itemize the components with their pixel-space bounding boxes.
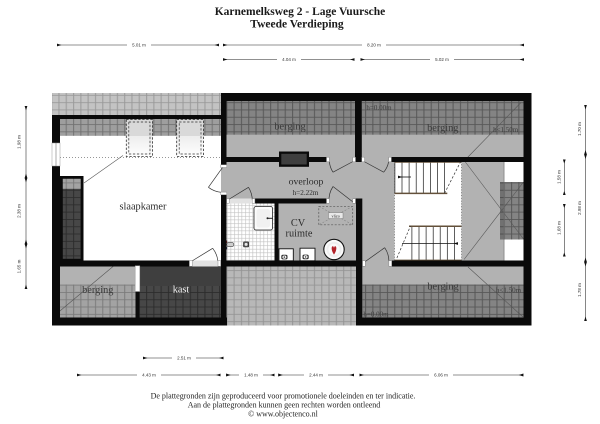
svg-text:Tweede Verdieping: Tweede Verdieping [250,18,344,30]
svg-text:h=0.00m: h=0.00m [363,310,389,318]
svg-text:h=2.22m: h=2.22m [293,189,319,197]
svg-text:5.02 m: 5.02 m [435,57,449,62]
svg-text:2.98 m: 2.98 m [577,201,582,215]
svg-text:4.43 m: 4.43 m [142,373,156,378]
svg-text:1.58 m: 1.58 m [557,170,562,184]
svg-text:h<1.50m: h<1.50m [496,286,522,294]
svg-text:overloop: overloop [289,177,324,188]
svg-text:h<1.50m: h<1.50m [493,126,519,134]
svg-text:© www.objectenco.nl: © www.objectenco.nl [248,409,319,418]
svg-text:1.68 m: 1.68 m [557,221,562,235]
svg-text:vlizo: vlizo [332,213,340,218]
svg-text:1.78 m: 1.78 m [577,283,582,297]
svg-text:2.44 m: 2.44 m [309,373,323,378]
svg-text:berging: berging [427,282,458,293]
svg-text:De plattegronden zijn geproduc: De plattegronden zijn geproduceerd voor … [151,392,416,401]
svg-text:1.48 m: 1.48 m [244,373,258,378]
svg-text:2.38 m: 2.38 m [17,204,22,218]
svg-text:1.65 m: 1.65 m [17,259,22,273]
svg-text:4.04 m: 4.04 m [282,57,296,62]
svg-text:5.01 m: 5.01 m [132,43,146,48]
svg-text:6.06 m: 6.06 m [434,373,448,378]
svg-text:ruimte: ruimte [286,228,313,239]
svg-text:berging: berging [427,123,458,134]
svg-text:berging: berging [274,121,305,132]
svg-text:kast: kast [173,285,190,296]
svg-text:Karnemelksweg 2 - Lage Vuursch: Karnemelksweg 2 - Lage Vuursche [215,6,386,18]
svg-text:slaapkamer: slaapkamer [120,202,167,213]
svg-text:2.51 m: 2.51 m [177,356,191,361]
svg-text:h=0.00m: h=0.00m [366,104,392,112]
svg-text:8.20 m: 8.20 m [367,43,381,48]
svg-text:1.70 m: 1.70 m [577,122,582,136]
svg-text:Aan de plattegronden kunnen ge: Aan de plattegronden kunnen geen rechten… [188,400,381,409]
svg-text:1.98 m: 1.98 m [17,135,22,149]
svg-text:berging: berging [82,285,113,296]
